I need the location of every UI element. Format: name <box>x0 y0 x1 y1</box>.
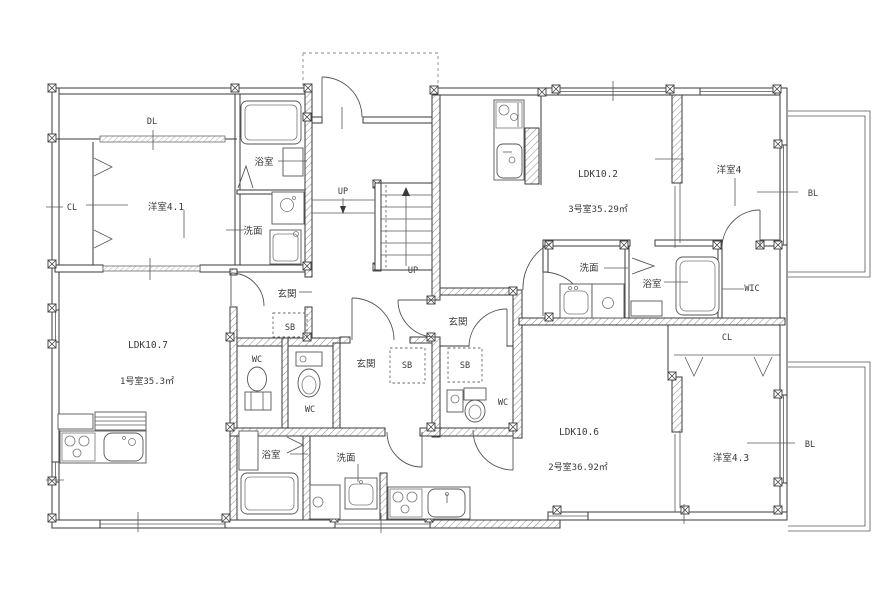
floor-plan-canvas: DL CL 洋室4.1 浴室 洗面 玄関 SB WC LDK10.7 1号室35… <box>0 0 892 595</box>
hanger-mark <box>754 357 772 376</box>
label-genkan-unit3: 玄関 <box>448 316 467 328</box>
window <box>700 88 775 95</box>
label-ldk-unit2: LDK10.6 <box>559 427 599 438</box>
label-sb-unit2: SB <box>402 361 412 371</box>
bath-step <box>631 301 662 316</box>
label-wic-unit3: WIC <box>744 284 759 294</box>
label-cl-unit1: CL <box>67 203 77 213</box>
kitchen-counter <box>58 412 146 463</box>
kitchen-counter <box>494 100 524 180</box>
door <box>231 273 264 306</box>
window <box>558 88 670 95</box>
window <box>335 520 430 528</box>
door <box>469 309 507 347</box>
washer-pan <box>592 284 624 318</box>
window-sill <box>100 136 225 142</box>
washbasin <box>272 192 304 224</box>
bathtub <box>676 257 719 315</box>
label-senmen-unit2: 洗面 <box>336 452 355 464</box>
window <box>780 145 787 245</box>
bath-folding-door <box>287 437 303 453</box>
hanger-mark <box>94 158 112 176</box>
label-name-unit2: 2号室36.92㎡ <box>548 461 608 473</box>
toilet <box>245 367 271 410</box>
porch-dashed-outline <box>303 53 438 88</box>
bath-folding-door <box>632 258 654 274</box>
label-wc-unit1: WC <box>252 355 262 365</box>
label-name-unit3: 3号室35.29㎡ <box>568 203 628 215</box>
label-up-1: UP <box>338 187 348 197</box>
sliding-door <box>675 183 680 248</box>
label-bath-unit1: 浴室 <box>254 156 273 168</box>
door <box>352 298 394 340</box>
label-ldk-unit3: LDK10.2 <box>578 169 618 180</box>
floor-plan-page: DL CL 洋室4.1 浴室 洗面 玄関 SB WC LDK10.7 1号室35… <box>0 0 892 595</box>
label-dl: DL <box>147 117 157 127</box>
label-cl-unit2: CL <box>722 333 732 343</box>
mini-basin <box>447 390 463 412</box>
up-arrow <box>402 187 410 266</box>
label-up-2: UP <box>408 266 418 276</box>
staircase <box>312 183 432 270</box>
label-bl-unit3: BL <box>808 189 818 199</box>
fixtures <box>58 100 719 519</box>
label-sb-unit1: SB <box>285 323 295 333</box>
bathtub <box>241 101 301 144</box>
washer-pan <box>270 230 301 264</box>
label-yoshitsu-unit1: 洋室4.1 <box>148 201 184 213</box>
label-sb-unit3: SB <box>460 361 470 371</box>
label-name-unit1: 1号室35.3㎡ <box>120 375 174 387</box>
hanger-mark <box>94 230 112 248</box>
label-genkan-unit1: 玄関 <box>277 288 296 300</box>
label-genkan-unit2: 玄関 <box>356 358 375 370</box>
bath-counter <box>283 148 303 176</box>
washer-pan <box>310 485 340 519</box>
label-ldk-unit1: LDK10.7 <box>128 340 168 351</box>
toilet <box>296 352 322 397</box>
bathtub <box>241 473 298 514</box>
label-wc-unit3: WC <box>498 398 508 408</box>
door <box>722 210 760 248</box>
bath-bench <box>239 431 258 470</box>
label-yoshitsu-unit2: 洋室4.3 <box>713 452 749 464</box>
label-bath-unit2: 浴室 <box>261 449 280 461</box>
washbasin <box>345 478 377 509</box>
kitchen-counter <box>388 487 470 519</box>
label-yoshitsu-unit3: 洋室4 <box>717 164 742 176</box>
window <box>52 310 59 342</box>
label-bath-unit3: 浴室 <box>642 278 661 290</box>
hanger-mark <box>685 357 703 376</box>
label-senmen-unit1: 洗面 <box>243 225 262 237</box>
sliding-door <box>675 432 680 512</box>
door <box>387 432 422 467</box>
label-wc-unit2: WC <box>305 405 315 415</box>
window <box>100 520 225 528</box>
label-bl-unit2: BL <box>805 440 815 450</box>
door <box>398 300 435 337</box>
window <box>780 395 787 483</box>
opening-sill <box>103 266 200 271</box>
label-senmen-unit3: 洗面 <box>579 262 598 274</box>
toilet <box>464 388 486 422</box>
